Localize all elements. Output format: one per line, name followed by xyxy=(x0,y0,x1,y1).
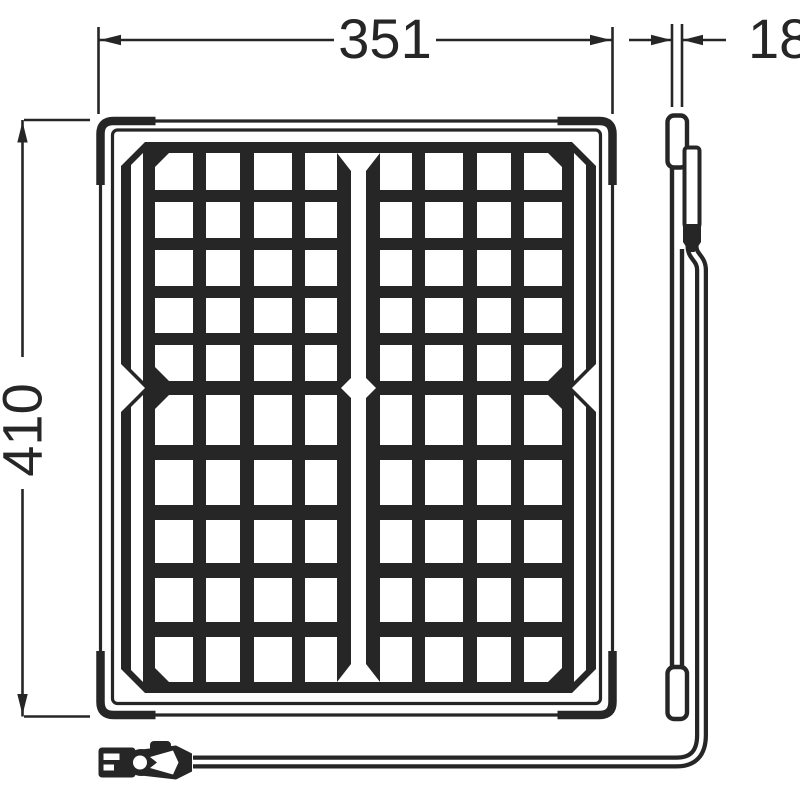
connector-pivot-hole xyxy=(133,756,147,770)
solar-cell xyxy=(524,298,562,333)
solar-cell xyxy=(524,520,562,563)
solar-cell xyxy=(425,637,463,682)
solar-cell xyxy=(206,345,240,381)
solar-cell xyxy=(477,578,511,622)
solar-cell xyxy=(254,153,292,190)
solar-cell xyxy=(305,578,337,622)
dimension-height-label: 410 xyxy=(0,383,54,476)
center-divider-top-bridge xyxy=(351,142,366,153)
solar-cell xyxy=(477,395,511,445)
solar-cell xyxy=(254,578,292,622)
solar-cell xyxy=(425,395,463,445)
solar-cell xyxy=(305,202,337,238)
solar-cell xyxy=(305,460,337,505)
solar-cell xyxy=(206,395,240,445)
solar-cell xyxy=(206,250,240,286)
solar-cell-narrow xyxy=(574,395,586,682)
solar-cell xyxy=(425,460,463,505)
arrowhead-down-icon xyxy=(17,694,27,715)
solar-cell xyxy=(524,250,562,286)
arrowhead-left-icon xyxy=(100,35,121,45)
solar-cell xyxy=(380,345,412,381)
solar-cell xyxy=(477,345,511,381)
solar-cell xyxy=(254,395,292,445)
solar-cell xyxy=(477,460,511,505)
solar-cell xyxy=(477,637,511,682)
solar-cell xyxy=(380,578,412,622)
solar-cell xyxy=(380,250,412,286)
dimension-width: 351 xyxy=(99,7,613,114)
solar-cell xyxy=(380,395,412,445)
solar-cell-narrow xyxy=(131,153,143,381)
solar-cell xyxy=(425,520,463,563)
solar-cell xyxy=(254,460,292,505)
dimension-depth-label: 18 xyxy=(748,7,800,70)
connector-notch-bottom xyxy=(104,765,115,771)
dimension-height: 410 xyxy=(0,120,90,717)
solar-cell xyxy=(477,202,511,238)
solar-cell xyxy=(380,460,412,505)
solar-cell xyxy=(425,250,463,286)
solar-cell xyxy=(477,520,511,563)
junction-box xyxy=(685,148,700,228)
solar-cell xyxy=(380,520,412,563)
dimension-depth: 18 xyxy=(629,7,800,107)
solar-cell xyxy=(254,250,292,286)
solar-cell xyxy=(155,460,193,505)
solar-cell xyxy=(206,202,240,238)
solar-cell xyxy=(305,395,337,445)
solar-cell xyxy=(155,520,193,563)
solar-cell xyxy=(155,578,193,622)
solar-cell xyxy=(305,153,337,190)
solar-cell xyxy=(477,153,511,190)
solar-cell xyxy=(155,250,193,286)
solar-cell xyxy=(155,298,193,333)
solar-cell xyxy=(254,520,292,563)
solar-cell xyxy=(155,202,193,238)
solar-cell xyxy=(206,578,240,622)
dimension-width-label: 351 xyxy=(338,7,431,70)
solar-cell xyxy=(524,460,562,505)
solar-cell xyxy=(425,345,463,381)
solar-cell xyxy=(305,520,337,563)
solar-cell xyxy=(206,298,240,333)
solar-cell xyxy=(305,250,337,286)
cell-grid xyxy=(121,142,596,693)
center-divider-bottom-bridge xyxy=(351,682,366,693)
solar-cell xyxy=(305,298,337,333)
solar-cell xyxy=(380,202,412,238)
solar-cell xyxy=(254,202,292,238)
solar-cell xyxy=(206,460,240,505)
solar-cell xyxy=(206,153,240,190)
solar-cell xyxy=(425,298,463,333)
arrowhead-left-pointing-icon xyxy=(683,35,704,45)
solar-cell-narrow xyxy=(131,395,143,682)
solar-cell xyxy=(524,202,562,238)
arrowhead-right-pointing-icon xyxy=(651,35,672,45)
solar-cell xyxy=(380,637,412,682)
solar-cell xyxy=(477,298,511,333)
solar-cell xyxy=(305,637,337,682)
connector xyxy=(99,741,193,780)
solar-cell xyxy=(206,637,240,682)
technical-drawing: 351 18 410 xyxy=(0,0,800,800)
solar-cell xyxy=(380,298,412,333)
solar-cell xyxy=(425,153,463,190)
side-profile-bottom-cap xyxy=(668,667,688,719)
solar-cell xyxy=(425,202,463,238)
arrowhead-right-icon xyxy=(590,35,611,45)
solar-cell xyxy=(524,578,562,622)
solar-cell xyxy=(254,298,292,333)
arrowhead-up-icon xyxy=(17,122,27,143)
solar-cell xyxy=(206,520,240,563)
solar-cell xyxy=(380,153,412,190)
solar-cell xyxy=(305,345,337,381)
solar-cell xyxy=(425,578,463,622)
connector-notch-top xyxy=(104,754,120,761)
solar-cell-narrow xyxy=(574,153,586,381)
solar-cell xyxy=(254,345,292,381)
solar-cell xyxy=(254,637,292,682)
front-view xyxy=(101,121,613,715)
solar-cell xyxy=(477,250,511,286)
